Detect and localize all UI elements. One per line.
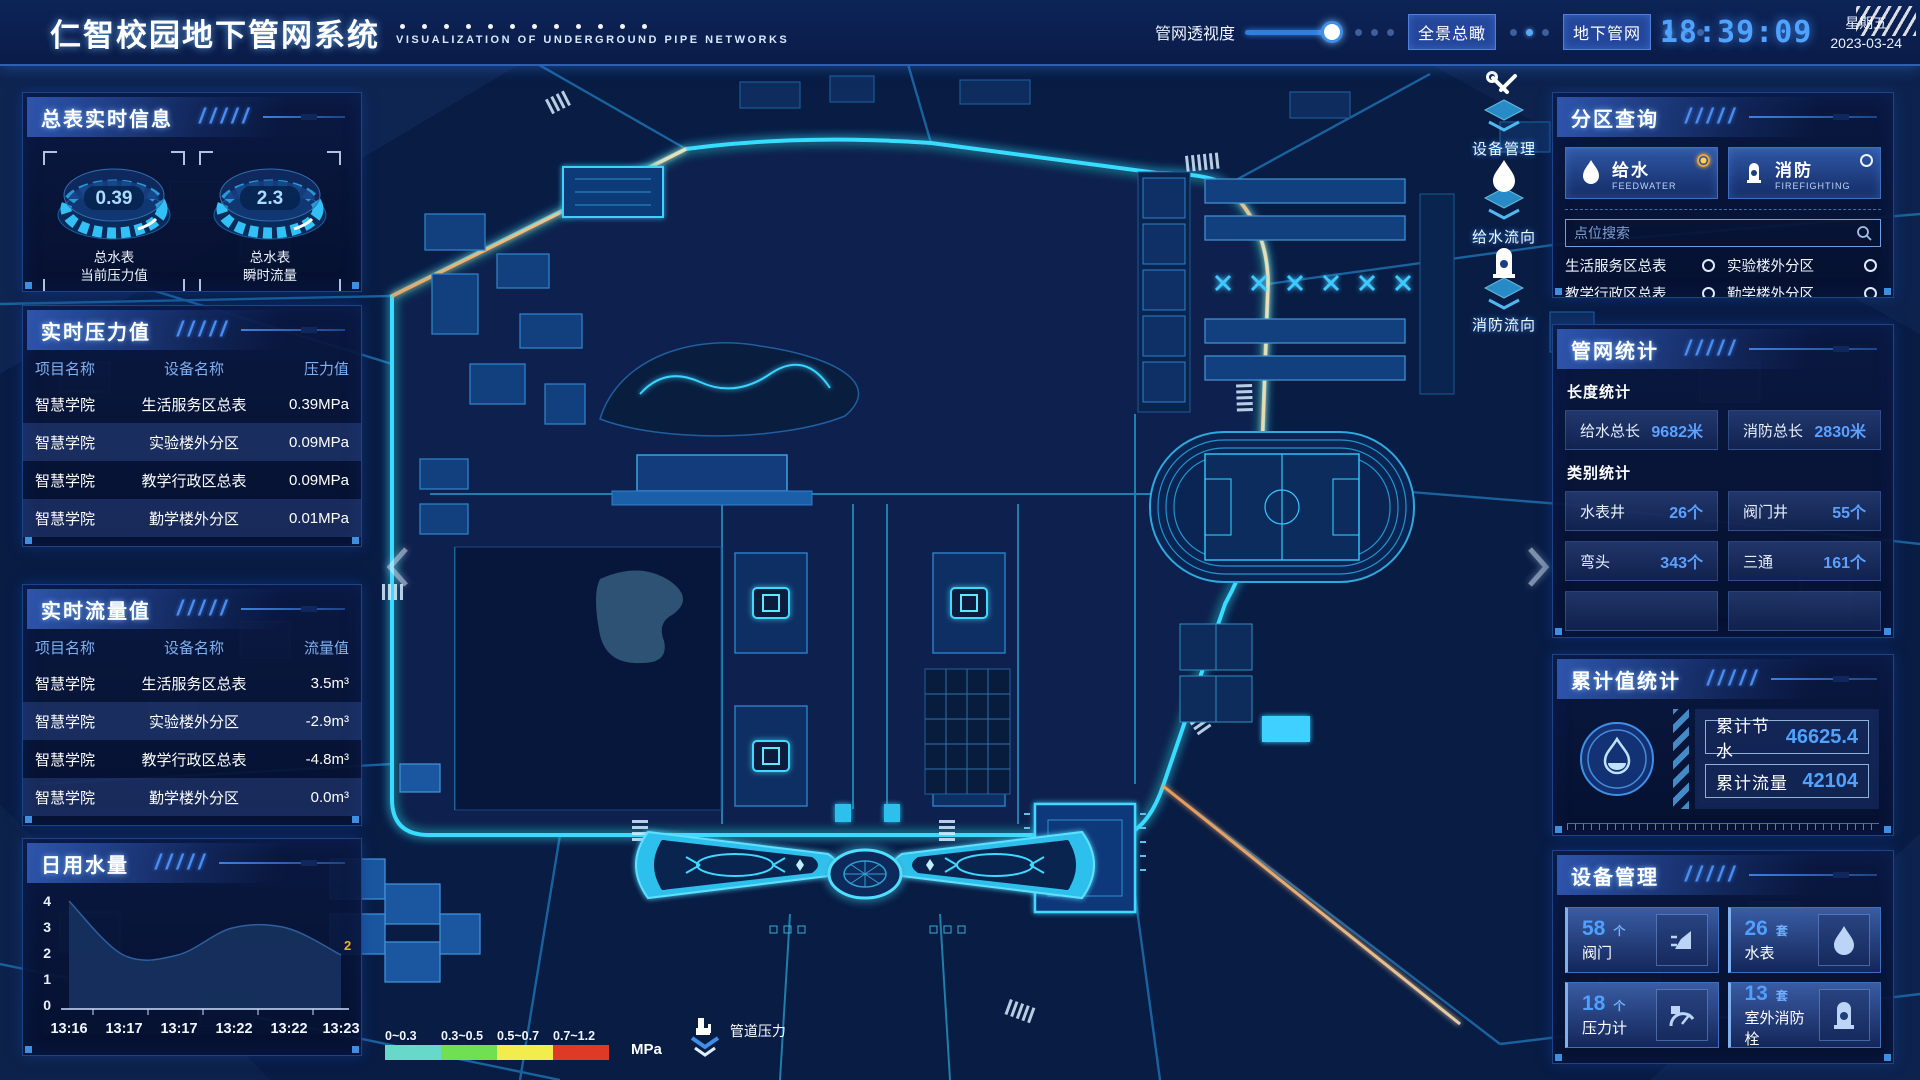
gauge-flow: 2.3 总水表瞬时流量	[199, 151, 341, 292]
panel-title: 总表实时信息	[41, 103, 173, 132]
map-tool-label: 给水流向	[1472, 226, 1536, 247]
svg-text:13:17: 13:17	[105, 1021, 142, 1037]
legend-range-2: 0.3~0.5	[441, 1029, 497, 1060]
map-pan-left-arrow[interactable]	[382, 545, 412, 594]
underground-pipes-button[interactable]: 地下管网	[1563, 14, 1651, 50]
svg-text:0: 0	[43, 997, 51, 1013]
table-row[interactable]: 智慧学院勤学楼外分区0.01MPa	[23, 499, 361, 537]
svg-text:1: 1	[43, 971, 51, 987]
table-row[interactable]: 智慧学院生活服务区总表0.39MPa	[23, 385, 361, 423]
water-meter-icon	[1830, 924, 1858, 956]
table-row[interactable]: 智慧学院生活服务区总表3.5m³	[23, 664, 361, 702]
panel-device-management: 设备管理///// 58个阀门 26套水表 18个压力计 13套室外消防栓	[1552, 850, 1894, 1064]
search-icon[interactable]	[1856, 225, 1872, 241]
stat-valve-wells: 阀门井55个	[1728, 491, 1881, 531]
tab-firefighting[interactable]: 消防FIREFIGHTING	[1728, 147, 1881, 199]
y-axis-ticks: 4 3 2 1 0	[43, 893, 51, 1013]
table-row[interactable]: 智慧学院教学行政区总表-4.8m³	[23, 740, 361, 778]
stat-tees: 三通161个	[1728, 541, 1881, 581]
device-card-valves[interactable]: 58个阀门	[1565, 907, 1719, 973]
table-row[interactable]: 智慧学院实验楼外分区0.09MPa	[23, 423, 361, 461]
pressure-gauge-icon	[1667, 1000, 1697, 1030]
daily-water-chart: 4 3 2 1 0 13:16 13:17 13:17 13:22 13:22 …	[23, 887, 362, 1051]
panorama-overview-button[interactable]: 全景总瞰	[1408, 14, 1496, 50]
legend-range-3: 0.5~0.7	[497, 1029, 553, 1060]
radio-icon[interactable]	[1864, 259, 1877, 272]
svg-text:3: 3	[43, 919, 51, 935]
map-pan-right-arrow[interactable]	[1524, 545, 1554, 594]
svg-text:4: 4	[43, 893, 51, 909]
stat-feedwater-length: 给水总长9682米	[1565, 410, 1718, 450]
pressure-legend: 0~0.3 0.3~0.5 0.5~0.7 0.7~1.2 MPa 管道压力	[385, 1016, 786, 1060]
library-building	[563, 167, 663, 217]
legend-range-1: 0~0.3	[385, 1029, 441, 1060]
dots-decoration	[1355, 29, 1394, 36]
category-stats-subtitle: 类别统计	[1567, 462, 1879, 483]
slider-thumb[interactable]	[1321, 21, 1343, 43]
header-dots-decoration	[396, 24, 789, 29]
panel-title: 实时流量值	[41, 595, 151, 624]
stat-fire-length: 消防总长2830米	[1728, 410, 1881, 450]
map-tool-fire-flow[interactable]: 消防流向	[1458, 246, 1550, 335]
gauge-dial: 0.39	[43, 151, 185, 251]
panel-title: 管网统计	[1571, 335, 1659, 364]
gauge-caption: 总水表当前压力值	[43, 249, 185, 285]
svg-text:0.39: 0.39	[96, 188, 133, 209]
map-tool-label: 设备管理	[1472, 138, 1536, 159]
clock-time: 18:39:09	[1660, 15, 1813, 50]
radio-icon[interactable]	[1702, 287, 1715, 299]
radio-unselected-icon[interactable]	[1860, 154, 1873, 167]
hydrant-icon	[1831, 999, 1857, 1031]
legend-range-4: 0.7~1.2	[553, 1029, 609, 1060]
dashed-divider	[1565, 209, 1881, 210]
panel-realtime-pressure: 实时压力值///// 项目名称设备名称压力值 智慧学院生活服务区总表0.39MP…	[22, 305, 362, 547]
panel-main-meter-info: 总表实时信息///// 0.39 总水表当前压力值	[22, 92, 362, 292]
dots-decoration	[1510, 29, 1549, 36]
app-title: 仁智校园地下管网系统	[50, 10, 380, 55]
stat-clipped	[1728, 591, 1881, 631]
svg-text:13:23: 13:23	[322, 1021, 359, 1037]
main-hall-building	[612, 455, 812, 505]
radio-selected-icon[interactable]	[1697, 154, 1710, 167]
ruler-decoration	[1567, 823, 1879, 830]
water-saving-icon	[1567, 709, 1667, 809]
water-drop-icon	[1481, 158, 1527, 224]
panel-title: 日用水量	[41, 849, 129, 878]
stadium	[1150, 432, 1414, 582]
map-tool-feedwater-flow[interactable]: 给水流向	[1458, 158, 1550, 247]
hydrant-icon	[1743, 160, 1765, 186]
radio-icon[interactable]	[1702, 259, 1715, 272]
gauge-caption: 总水表瞬时流量	[199, 249, 341, 285]
length-stats-subtitle: 长度统计	[1567, 381, 1879, 402]
table-row[interactable]: 智慧学院砺学楼外分区2.3m³	[23, 816, 361, 826]
west-field	[455, 547, 721, 810]
panel-title: 设备管理	[1571, 861, 1659, 890]
cumulative-water-saved: 累计节水46625.4	[1705, 720, 1869, 754]
search-placeholder: 点位搜索	[1574, 223, 1630, 243]
device-card-pressure-gauges[interactable]: 18个压力计	[1565, 982, 1719, 1048]
clock-date: 2023-03-24	[1830, 35, 1902, 51]
panel-title: 实时压力值	[41, 316, 151, 345]
device-card-hydrants[interactable]: 13套室外消防栓	[1728, 982, 1882, 1048]
stripe-divider-decoration	[1673, 709, 1689, 809]
svg-text:13:16: 13:16	[50, 1021, 87, 1037]
panel-realtime-flow: 实时流量值///// 项目名称设备名称流量值 智慧学院生活服务区总表3.5m³ …	[22, 584, 362, 826]
legend-swatch	[385, 1045, 441, 1060]
map-tool-label: 消防流向	[1472, 314, 1536, 335]
map-tool-device-manage[interactable]: 设备管理	[1458, 70, 1550, 159]
stat-elbows: 弯头343个	[1565, 541, 1718, 581]
zone-item[interactable]: 实验楼外分区	[1727, 251, 1881, 279]
pipe-opacity-slider[interactable]	[1245, 21, 1341, 43]
table-row[interactable]: 智慧学院勤学楼外分区0.0m³	[23, 778, 361, 816]
panel-title: 分区查询	[1571, 103, 1659, 132]
zone-item[interactable]: 生活服务区总表	[1565, 251, 1719, 279]
device-card-water-meters[interactable]: 26套水表	[1728, 907, 1882, 973]
panel-title: 累计值统计	[1571, 665, 1681, 694]
panel-zone-query: 分区查询///// 给水FEEDWATER 消防FIREFIGHTING 点位搜…	[1552, 92, 1894, 298]
table-row[interactable]: 智慧学院砺学楼外分区0.00MPa	[23, 537, 361, 547]
zone-item[interactable]: 教学行政区总表	[1565, 279, 1719, 298]
legend-swatch	[441, 1045, 497, 1060]
point-search-input[interactable]: 点位搜索	[1565, 219, 1881, 247]
radio-icon[interactable]	[1864, 287, 1877, 299]
wrench-icon	[1481, 70, 1527, 136]
corner-hatch-decoration	[1856, 6, 1916, 36]
panel-daily-water-usage: 日用水量///// 4 3 2 1 0 13:16 13:17 13:17 13…	[22, 838, 362, 1056]
tab-feedwater[interactable]: 给水FEEDWATER	[1565, 147, 1718, 199]
panel-pipe-statistics: 管网统计///// 长度统计 给水总长9682米 消防总长2830米 类别统计 …	[1552, 324, 1894, 638]
pipe-pressure-label: 管道压力	[730, 1021, 786, 1041]
pipe-opacity-label: 管网透视度	[1155, 20, 1235, 44]
svg-text:2: 2	[43, 945, 51, 961]
pipe-pressure-meter-icon	[688, 1016, 722, 1060]
x-axis-labels: 13:16 13:17 13:17 13:22 13:22 13:23	[50, 1021, 359, 1037]
stat-water-meter-wells: 水表井26个	[1565, 491, 1718, 531]
svg-text:2.3: 2.3	[257, 188, 283, 209]
app-subtitle: VISUALIZATION OF UNDERGROUND PIPE NETWOR…	[396, 34, 789, 46]
cumulative-flow: 累计流量42104	[1705, 764, 1869, 798]
grid-roof-building	[925, 669, 1010, 794]
svg-text:13:22: 13:22	[215, 1021, 252, 1037]
valve-icon	[1667, 925, 1697, 955]
legend-swatch	[497, 1045, 553, 1060]
legend-unit: MPa	[631, 1041, 662, 1058]
top-header-bar: 仁智校园地下管网系统 VISUALIZATION OF UNDERGROUND …	[0, 0, 1920, 66]
hydrant-icon	[1481, 246, 1527, 312]
flow-table-header: 项目名称设备名称流量值	[23, 629, 361, 664]
table-row[interactable]: 智慧学院实验楼外分区-2.9m³	[23, 702, 361, 740]
svg-text:13:17: 13:17	[160, 1021, 197, 1037]
stat-clipped	[1565, 591, 1718, 631]
pressure-table-header: 项目名称设备名称压力值	[23, 350, 361, 385]
gauge-pressure: 0.39 总水表当前压力值	[43, 151, 185, 292]
chart-end-value-label: 2	[344, 938, 351, 953]
legend-swatch	[553, 1045, 609, 1060]
zone-item[interactable]: 勤学楼外分区	[1727, 279, 1881, 298]
panel-cumulative-totals: 累计值统计///// 累计节水46625.4 累计流量42104	[1552, 654, 1894, 836]
water-drop-icon	[1580, 159, 1602, 187]
svg-text:13:22: 13:22	[270, 1021, 307, 1037]
brand-block: 仁智校园地下管网系统 VISUALIZATION OF UNDERGROUND …	[50, 10, 789, 55]
gauge-dial: 2.3	[199, 151, 341, 251]
table-row[interactable]: 智慧学院教学行政区总表0.09MPa	[23, 461, 361, 499]
